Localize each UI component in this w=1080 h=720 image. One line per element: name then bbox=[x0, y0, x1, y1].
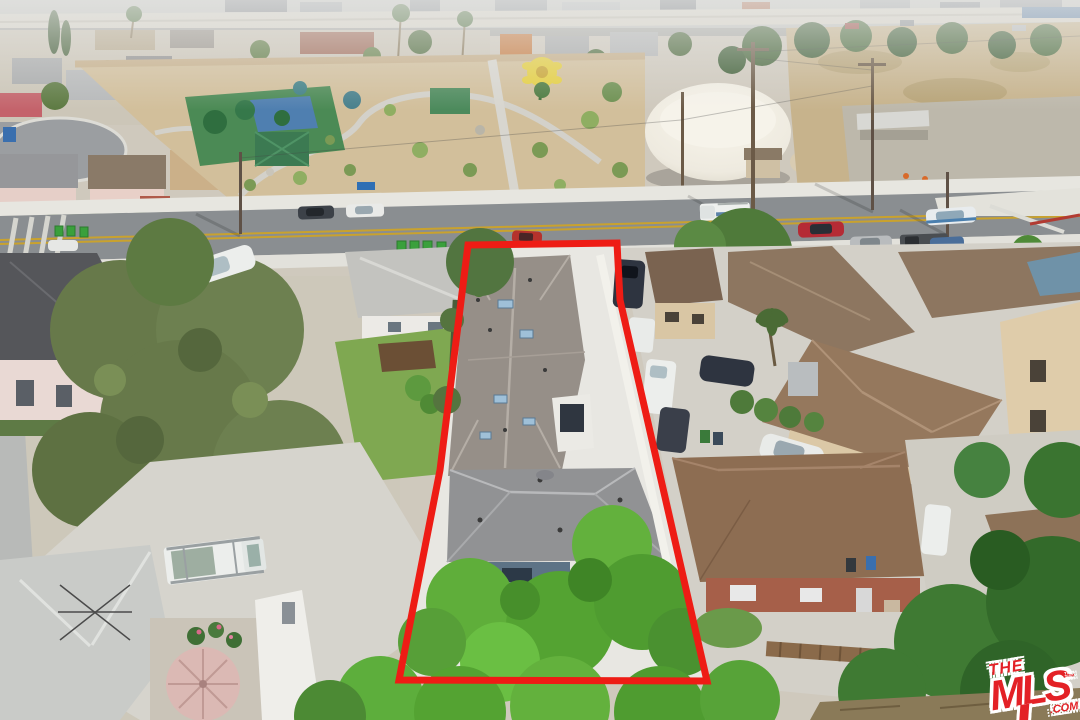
parked-white-sedan bbox=[346, 203, 384, 217]
mls-watermark-mls: MLS™ bbox=[987, 666, 1077, 713]
white-van bbox=[920, 504, 951, 556]
park-sign bbox=[357, 182, 375, 190]
parked-dark-sedan bbox=[298, 205, 334, 219]
utility-pole bbox=[239, 152, 242, 234]
trademark-symbol: ™ bbox=[1067, 672, 1076, 682]
dumpster bbox=[3, 127, 16, 142]
atmospheric-haze bbox=[0, 0, 1080, 110]
shed bbox=[788, 362, 818, 396]
parked-car-partial bbox=[48, 240, 78, 251]
moving-red-sedan bbox=[798, 221, 844, 238]
aerial-photo: THE MLS™ .COM bbox=[0, 0, 1080, 720]
mls-watermark: THE MLS™ .COM bbox=[985, 652, 1079, 720]
neighbor-roof bbox=[645, 248, 723, 306]
left-neighborhood bbox=[0, 222, 468, 720]
aerial-scene bbox=[0, 0, 1080, 720]
patio-umbrella bbox=[166, 647, 240, 720]
mls-l-descender bbox=[1019, 703, 1029, 720]
blue-bin bbox=[866, 556, 876, 570]
